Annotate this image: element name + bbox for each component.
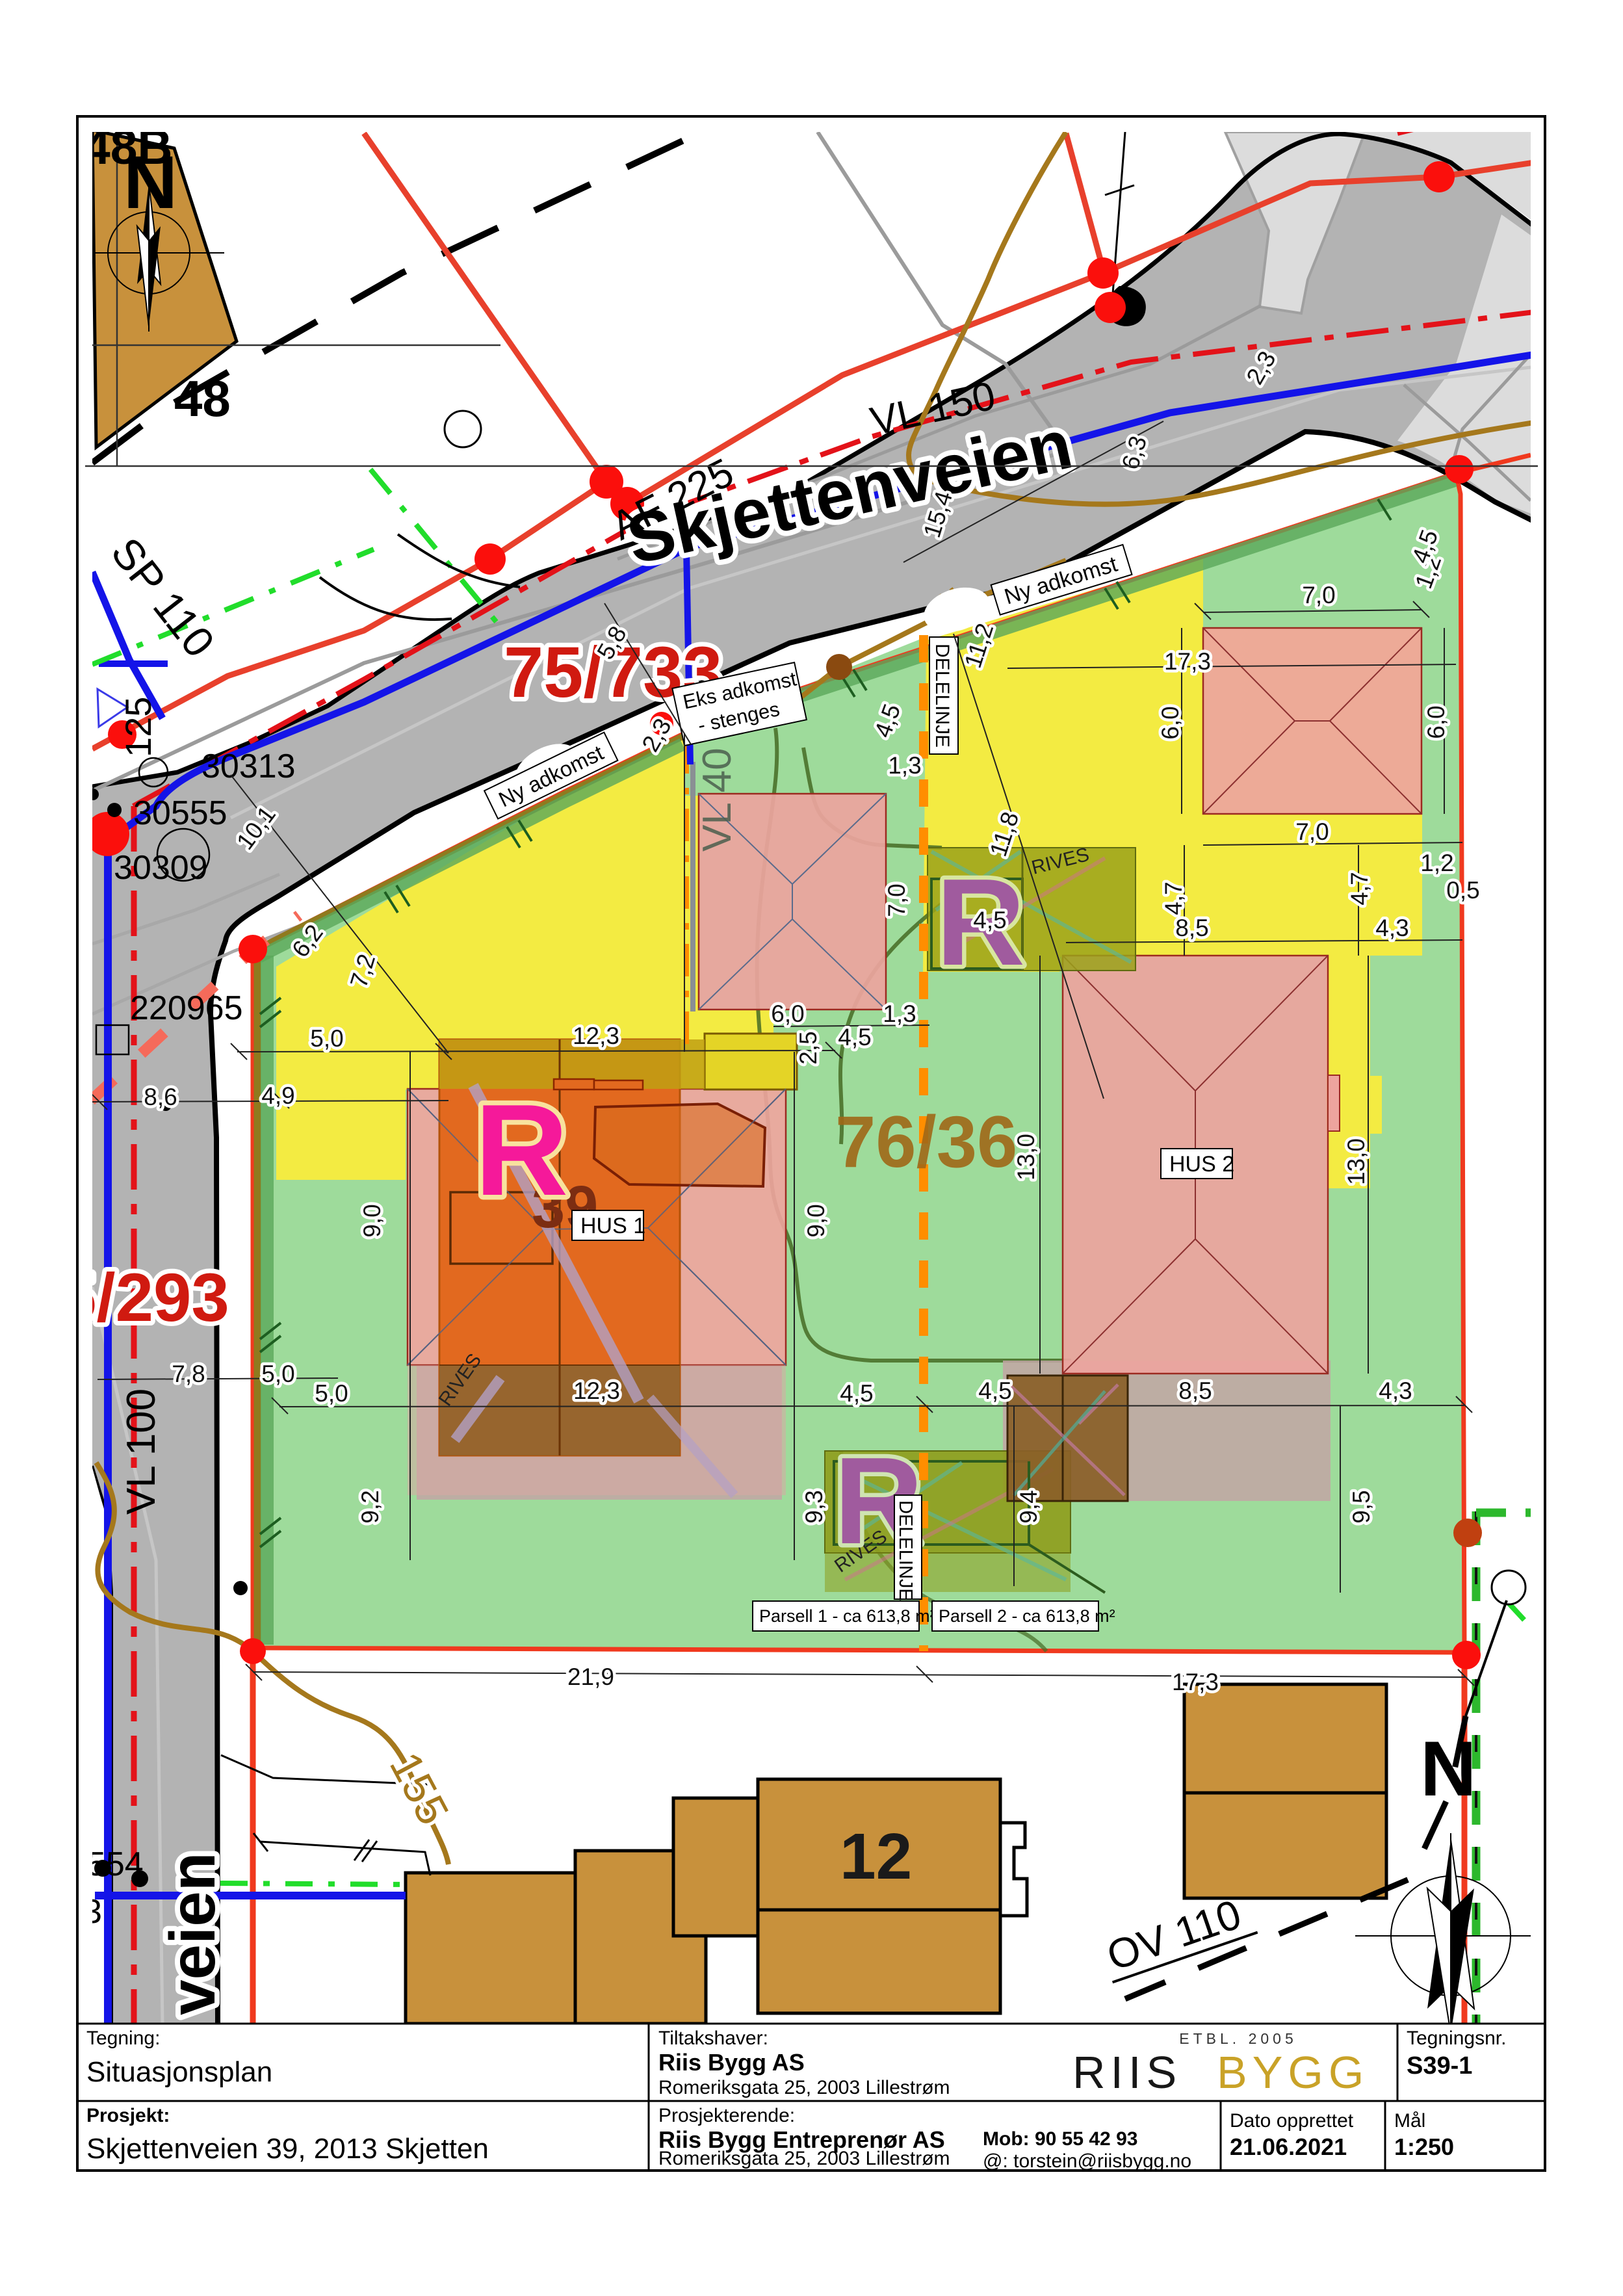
svg-text:2,5: 2,5 bbox=[795, 1031, 822, 1064]
svg-text:BYGG: BYGG bbox=[1217, 2047, 1369, 2098]
svg-text:21,9: 21,9 bbox=[567, 1663, 614, 1690]
svg-text:Situasjonsplan: Situasjonsplan bbox=[86, 2056, 272, 2088]
svg-text:4,5: 4,5 bbox=[838, 1024, 871, 1050]
svg-text:17,3: 17,3 bbox=[1172, 1669, 1219, 1695]
svg-text:48: 48 bbox=[174, 370, 231, 427]
svg-text:HUS 1: HUS 1 bbox=[580, 1214, 645, 1238]
svg-text:N: N bbox=[1420, 1725, 1477, 1812]
svg-text:21.06.2021: 21.06.2021 bbox=[1230, 2133, 1347, 2160]
svg-text:4,9: 4,9 bbox=[261, 1082, 294, 1109]
svg-text:125: 125 bbox=[118, 697, 159, 757]
svg-text:Prosjekterende:: Prosjekterende: bbox=[658, 2105, 795, 2126]
svg-text:4,7: 4,7 bbox=[1160, 881, 1187, 915]
svg-text:HUS 2: HUS 2 bbox=[1169, 1152, 1234, 1177]
svg-text:8,6: 8,6 bbox=[144, 1084, 177, 1110]
svg-text:Parsell 1 - ca 613,8 m²: Parsell 1 - ca 613,8 m² bbox=[759, 1606, 936, 1626]
svg-text:4,5: 4,5 bbox=[978, 1377, 1011, 1404]
svg-text:1,3: 1,3 bbox=[888, 752, 921, 779]
svg-text:9,3: 9,3 bbox=[801, 1490, 827, 1523]
svg-text:30309: 30309 bbox=[114, 849, 208, 887]
svg-text:6,0: 6,0 bbox=[1157, 706, 1184, 739]
svg-text:7,0: 7,0 bbox=[883, 883, 910, 917]
svg-text:Romeriksgata 25, 2003 Lillestr: Romeriksgata 25, 2003 Lillestrøm bbox=[658, 2148, 950, 2169]
svg-text:R: R bbox=[474, 1078, 568, 1223]
svg-text:1:250: 1:250 bbox=[1394, 2133, 1454, 2160]
svg-text:0,5: 0,5 bbox=[1446, 877, 1479, 904]
svg-text:5,0: 5,0 bbox=[310, 1025, 343, 1052]
svg-text:4,5: 4,5 bbox=[840, 1380, 873, 1407]
svg-text:13,0: 13,0 bbox=[1013, 1134, 1039, 1181]
svg-text:17,3: 17,3 bbox=[1164, 648, 1211, 675]
svg-text:7,0: 7,0 bbox=[1295, 818, 1329, 845]
svg-text:Mål: Mål bbox=[1394, 2110, 1425, 2132]
svg-text:76/36: 76/36 bbox=[835, 1101, 1017, 1182]
svg-text:9,4: 9,4 bbox=[1015, 1490, 1042, 1523]
svg-text:6,0: 6,0 bbox=[1423, 705, 1449, 738]
svg-text:ETBL. 2005: ETBL. 2005 bbox=[1179, 2030, 1297, 2047]
svg-text:Parsell 2 - ca 613,8 m²: Parsell 2 - ca 613,8 m² bbox=[939, 1606, 1115, 1626]
svg-text:S39-1: S39-1 bbox=[1407, 2052, 1472, 2080]
svg-text:4,3: 4,3 bbox=[1379, 1377, 1412, 1404]
svg-text:Tegning:: Tegning: bbox=[86, 2028, 160, 2049]
svg-text:DELELINJE: DELELINJE bbox=[895, 1500, 916, 1601]
svg-text:9,0: 9,0 bbox=[803, 1204, 829, 1237]
svg-text:7,8: 7,8 bbox=[172, 1361, 205, 1387]
svg-text:30555: 30555 bbox=[133, 794, 227, 832]
svg-text:5,0: 5,0 bbox=[315, 1380, 348, 1407]
svg-text:12: 12 bbox=[840, 1820, 912, 1893]
svg-text:Dato opprettet: Dato opprettet bbox=[1230, 2110, 1354, 2132]
svg-text:5,0: 5,0 bbox=[261, 1361, 294, 1387]
svg-text:VL 40: VL 40 bbox=[695, 748, 740, 852]
svg-text:Mob: 90 55 42 93: Mob: 90 55 42 93 bbox=[983, 2128, 1137, 2150]
svg-text:220965: 220965 bbox=[130, 989, 243, 1027]
svg-text:13,0: 13,0 bbox=[1343, 1138, 1370, 1185]
svg-text:7,0: 7,0 bbox=[1302, 582, 1335, 608]
svg-text:1,2: 1,2 bbox=[1420, 850, 1453, 876]
svg-text:8,5: 8,5 bbox=[1175, 915, 1208, 941]
svg-text:@: torstein@riisbygg.no: @: torstein@riisbygg.no bbox=[983, 2150, 1191, 2172]
svg-text:Prosjekt:: Prosjekt: bbox=[86, 2105, 170, 2126]
svg-text:1,3: 1,3 bbox=[883, 1000, 916, 1027]
svg-text:6,0: 6,0 bbox=[771, 1000, 804, 1027]
svg-text:12,3: 12,3 bbox=[573, 1023, 619, 1049]
svg-text:veien: veien bbox=[157, 1852, 228, 2015]
svg-text:30313: 30313 bbox=[201, 748, 296, 785]
svg-text:4,7: 4,7 bbox=[1346, 872, 1373, 905]
svg-text:12,3: 12,3 bbox=[573, 1377, 620, 1404]
svg-text:9,2: 9,2 bbox=[357, 1490, 383, 1523]
svg-text:DELELINJE: DELELINJE bbox=[931, 644, 953, 748]
svg-text:4,5: 4,5 bbox=[973, 907, 1006, 933]
svg-text:Riis Bygg AS: Riis Bygg AS bbox=[658, 2049, 805, 2076]
svg-text:Romeriksgata 25, 2003 Lillestr: Romeriksgata 25, 2003 Lillestrøm bbox=[658, 2077, 950, 2098]
svg-text:8,5: 8,5 bbox=[1178, 1377, 1212, 1404]
svg-text:4,3: 4,3 bbox=[1375, 915, 1409, 941]
svg-text:VL 100: VL 100 bbox=[119, 1389, 164, 1515]
svg-text:Tiltakshaver:: Tiltakshaver: bbox=[658, 2028, 768, 2049]
svg-text:Tegningsnr.: Tegningsnr. bbox=[1407, 2028, 1506, 2049]
svg-text:RIIS: RIIS bbox=[1072, 2047, 1182, 2098]
svg-text:9,0: 9,0 bbox=[359, 1204, 385, 1237]
svg-text:Skjettenveien 39, 2013 Skjette: Skjettenveien 39, 2013 Skjetten bbox=[86, 2133, 489, 2165]
svg-text:9,5: 9,5 bbox=[1348, 1490, 1375, 1523]
